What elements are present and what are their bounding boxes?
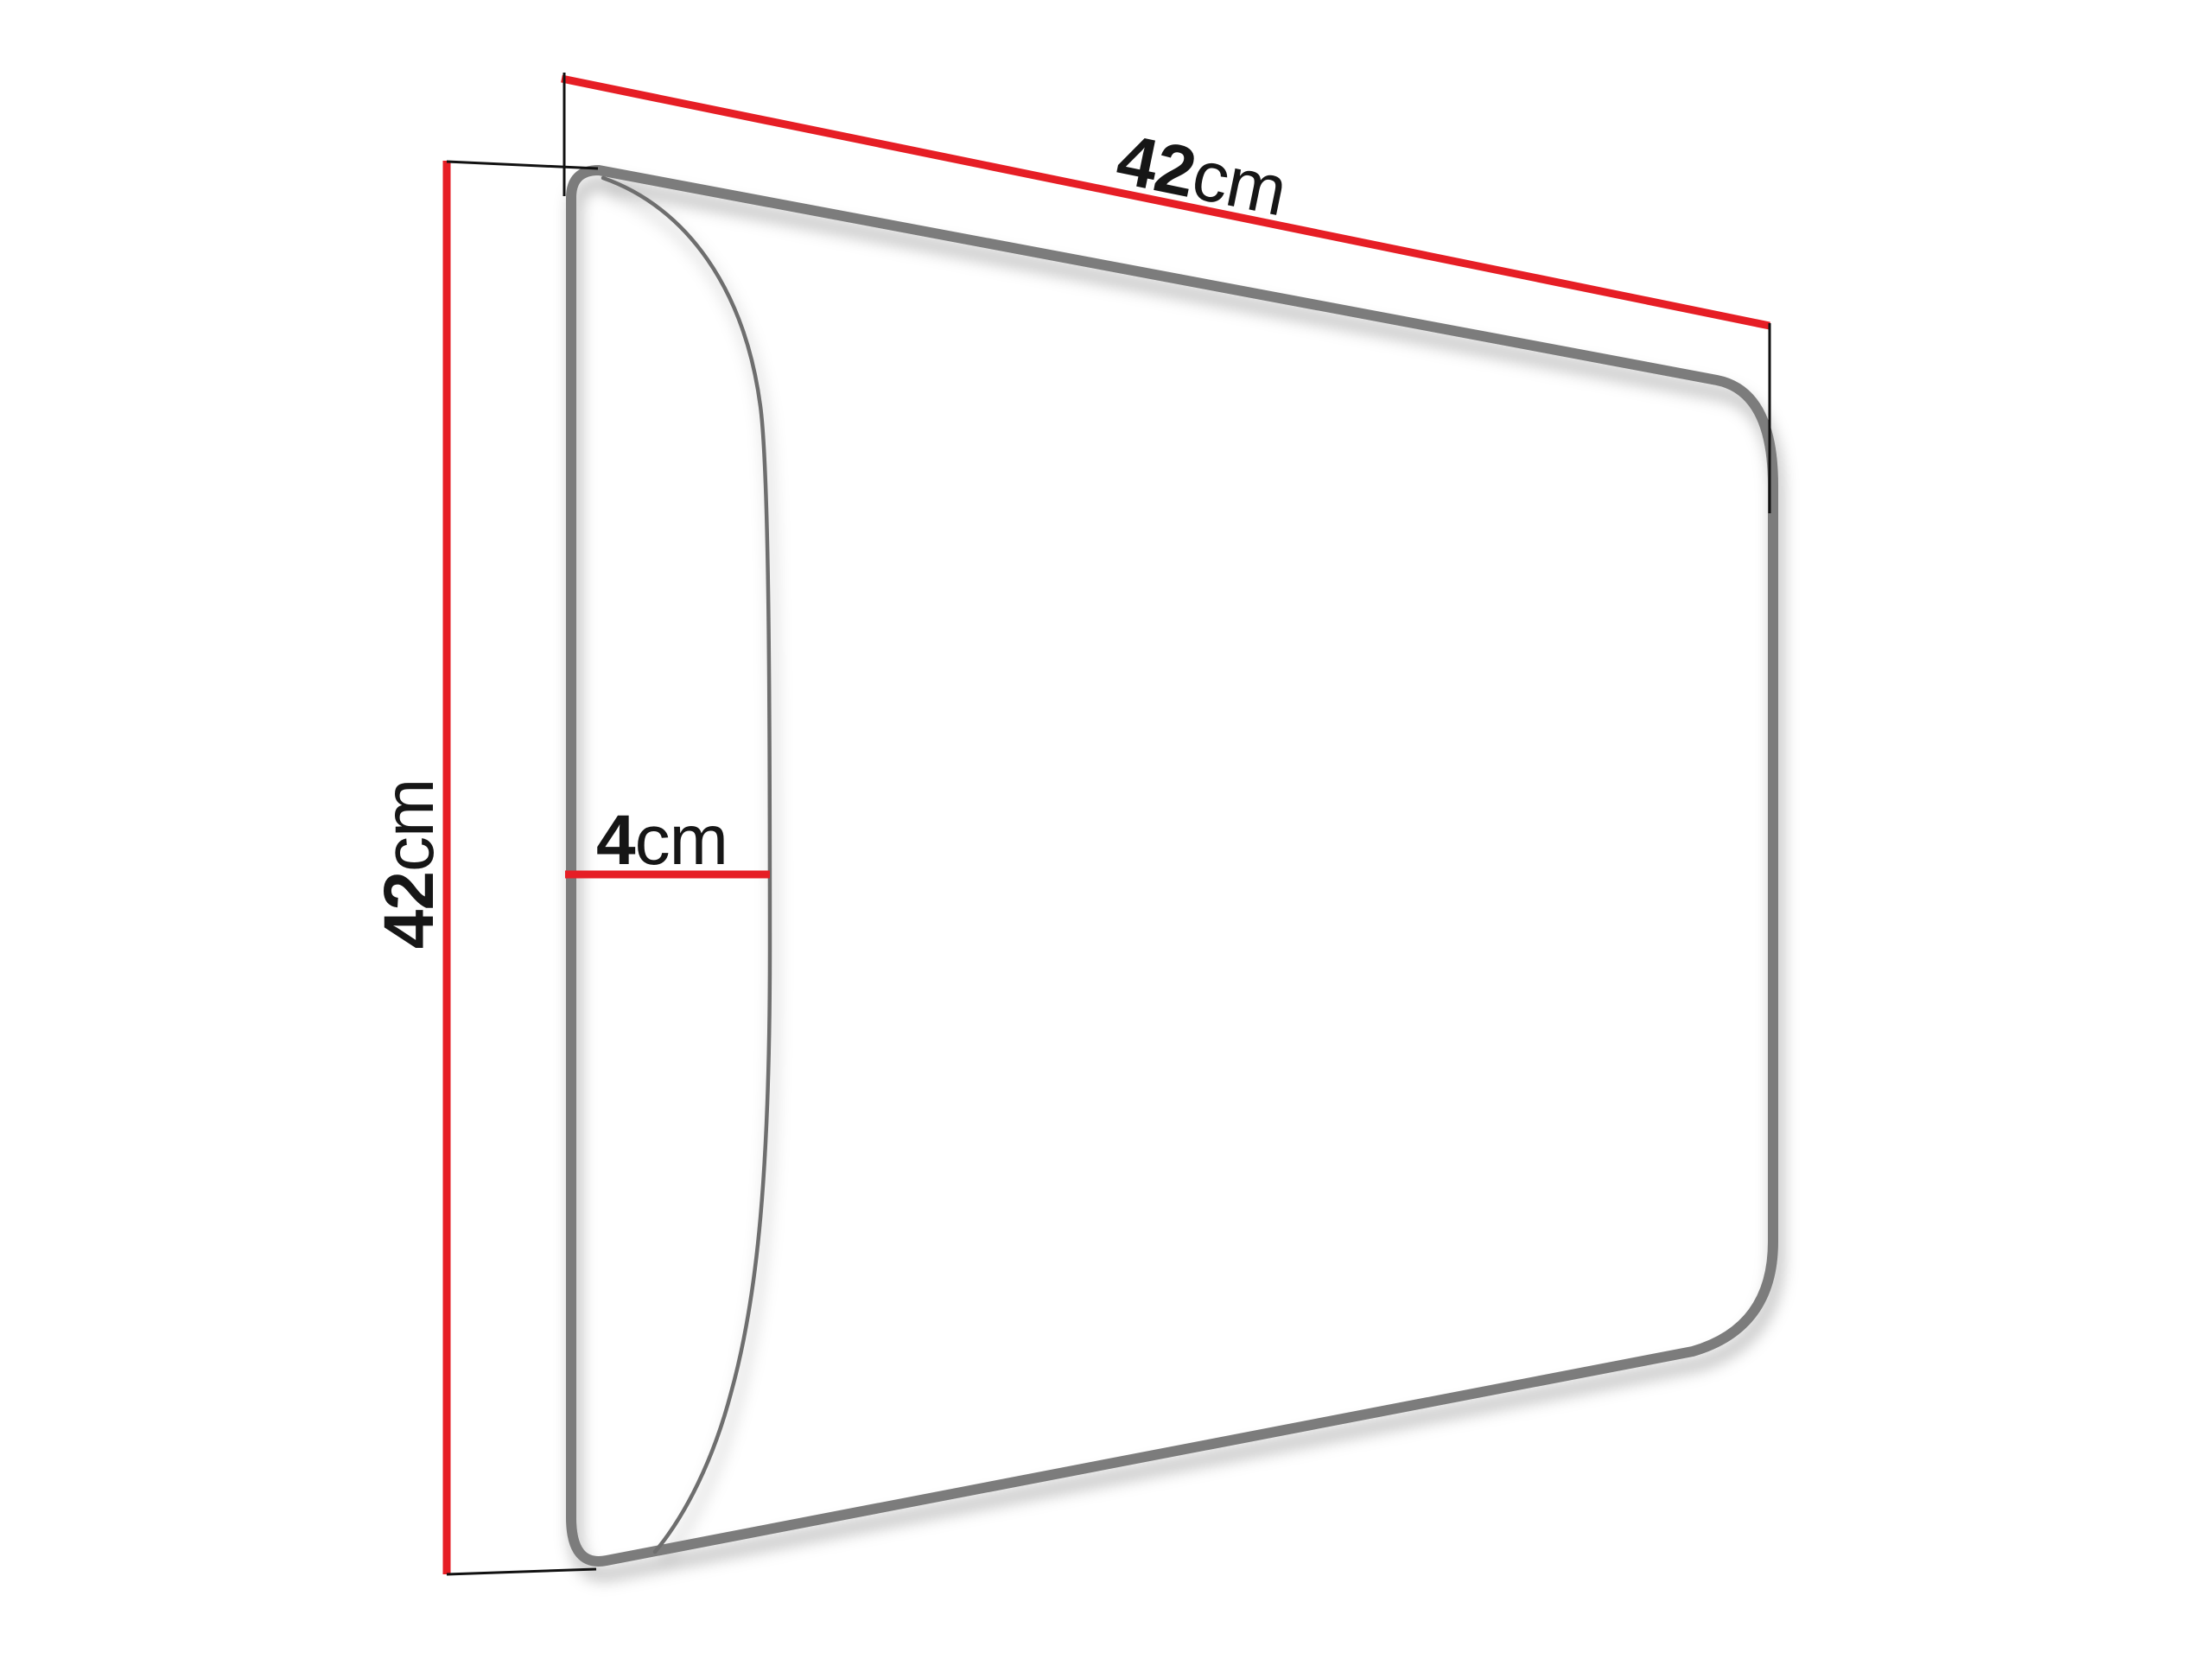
height-extension-line-top [447, 162, 598, 168]
dimension-drawing-canvas: 42cm 42cm 4cm [0, 0, 2212, 1659]
panel-face [571, 170, 1773, 1561]
depth-dimension-label: 4cm [596, 801, 728, 880]
height-dimension-label: 42cm [370, 779, 448, 950]
panel-dimension-diagram: 42cm 42cm 4cm [0, 0, 2212, 1659]
width-dimension-label: 42cm [1110, 120, 1293, 232]
height-extension-line-bottom [447, 1569, 596, 1574]
